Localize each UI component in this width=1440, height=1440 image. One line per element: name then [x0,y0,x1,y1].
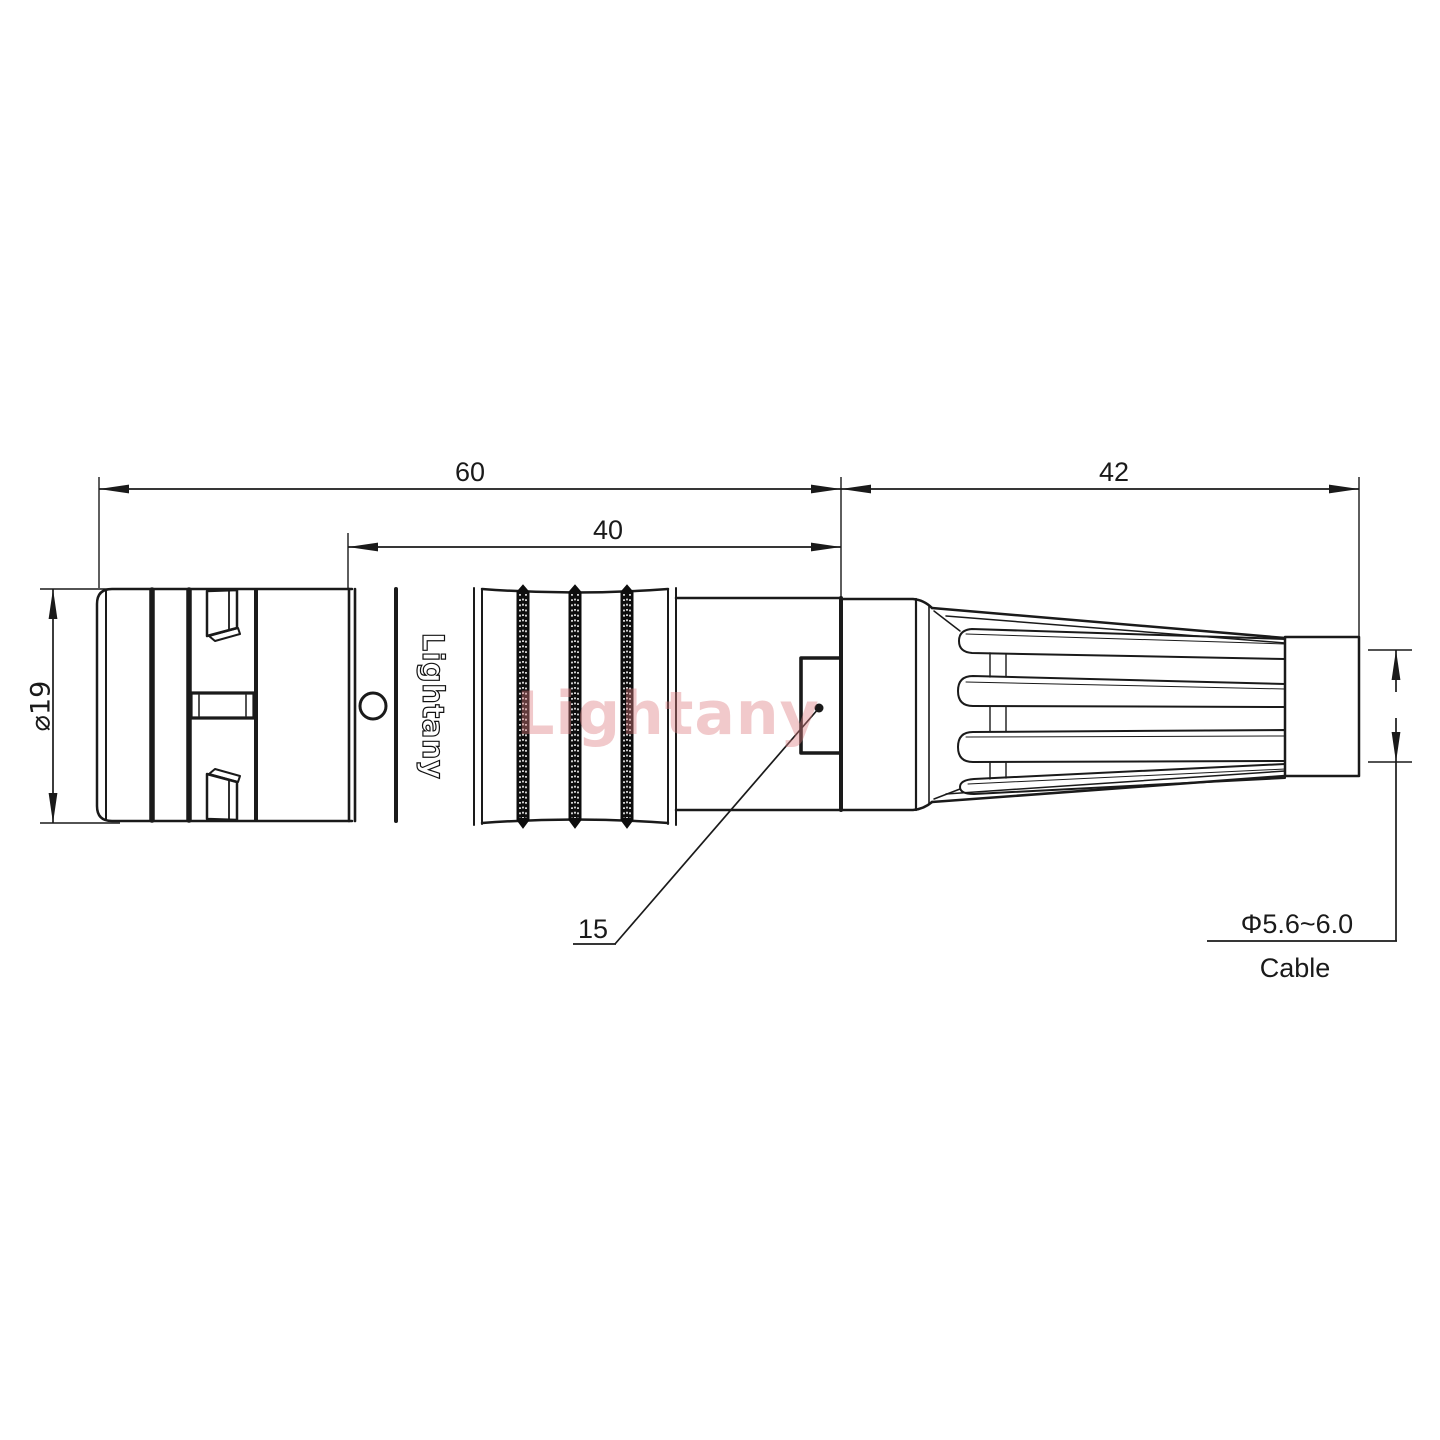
brand-watermark: Lightany [516,679,819,749]
leader-15-label: 15 [578,914,608,944]
technical-drawing-canvas: Lightany [0,0,1440,1440]
cable-range-label: Φ5.6~6.0 [1241,909,1353,939]
cable-label: Cable [1260,953,1331,983]
dim-60-label: 60 [455,457,485,487]
connector-engineering-drawing: Lightany [0,0,1440,1440]
dim-40-label: 40 [593,515,623,545]
dim-dia19-label: ⌀19 [25,681,56,732]
dim-42-label: 42 [1099,457,1129,487]
body-brand-text: Lightany [416,633,450,780]
